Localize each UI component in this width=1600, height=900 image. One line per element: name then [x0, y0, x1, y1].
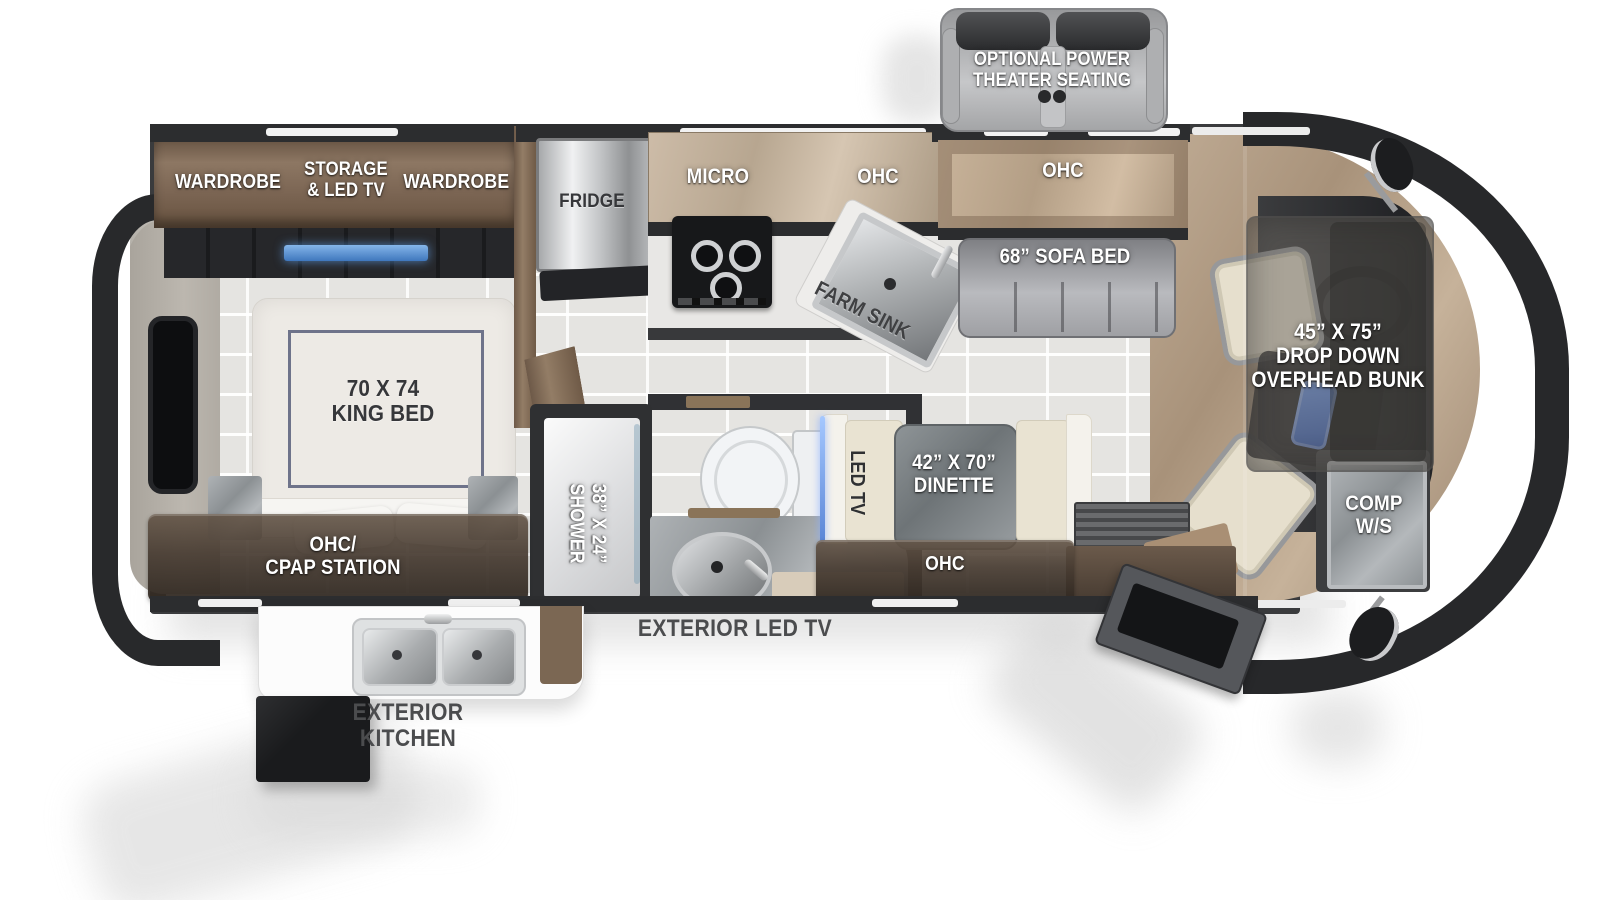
exterior-sink-drain-icon	[472, 650, 482, 660]
floorplan-stage: COMPW/S 45” X 75”DROP DOWNOVERHEAD BUNK …	[0, 0, 1600, 900]
sofa-seams	[970, 282, 1160, 332]
label-storage-led-tv: STORAGE& LED TV	[297, 160, 396, 201]
label-ohc-kitchen: OHC	[829, 166, 928, 189]
cupholder-icon	[1053, 90, 1066, 103]
dinette-bench-right	[1016, 420, 1070, 542]
dinette-led-strip	[820, 416, 825, 542]
vanity-drain-icon	[711, 561, 723, 573]
bath-shelf	[686, 396, 750, 408]
label-wardrobe-left: WARDROBE	[173, 172, 282, 194]
label-king-bed: 70 X 74KING BED	[298, 376, 469, 426]
label-exterior-led-tv: EXTERIOR LED TV	[630, 616, 839, 642]
exterior-kitchen-wood-side	[540, 606, 582, 684]
shadow-front	[1290, 690, 1385, 765]
cooktop-vent	[678, 298, 766, 305]
shower-glass	[634, 424, 640, 584]
theater-headrest-right	[1056, 12, 1150, 50]
bottom-window-1	[198, 599, 262, 607]
exterior-faucet-icon	[424, 614, 452, 624]
label-ohc-dinette: OHC	[891, 554, 998, 576]
burner-icon	[691, 240, 723, 272]
exterior-sink-drain-icon	[392, 650, 402, 660]
label-theater: OPTIONAL POWERTHEATER SEATING	[964, 50, 1140, 91]
label-shower: 38” X 24”SHOWER	[565, 458, 608, 590]
label-micro: MICRO	[669, 166, 768, 189]
cupholder-icon	[1038, 90, 1051, 103]
vanity-wood-trim	[688, 508, 780, 518]
label-cpap: OHC/CPAP STATION	[219, 534, 448, 579]
bottom-window-3	[872, 599, 958, 607]
label-wardrobe-right: WARDROBE	[403, 172, 509, 194]
label-ohc-sofa: OHC	[1009, 160, 1116, 183]
label-fridge: FRIDGE	[545, 192, 639, 213]
burner-icon	[729, 240, 761, 272]
label-dinette: 42” X 70”DINETTE	[892, 452, 1015, 497]
bedroom-slide-window	[266, 128, 398, 136]
windshield-trim-top	[1192, 127, 1310, 135]
label-led-tv: LED TV	[845, 432, 867, 533]
led-light-strip	[284, 245, 428, 261]
farm-sink-drain-icon	[884, 278, 896, 290]
fridge-base	[539, 265, 662, 301]
sofa-ohc-cabinet	[938, 140, 1188, 230]
theater-headrest-left	[956, 12, 1050, 50]
label-sofa-bed: 68” SOFA BED	[974, 246, 1155, 269]
label-exterior-kitchen: EXTERIORKITCHEN	[329, 700, 487, 753]
